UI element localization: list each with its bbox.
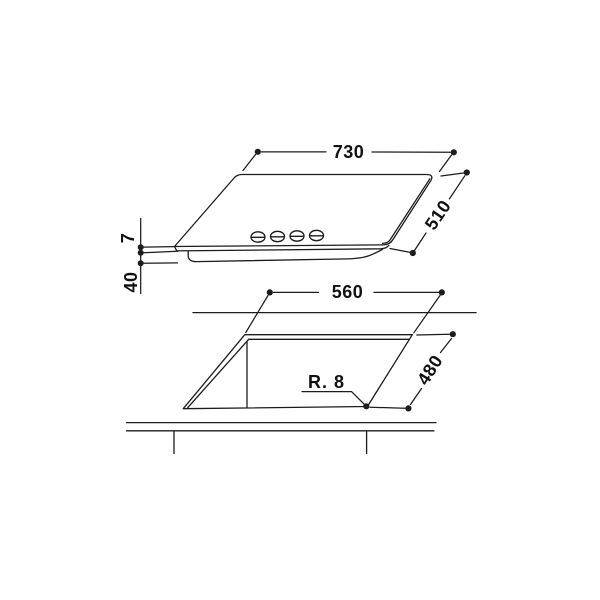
hob-perspective-view [138, 149, 470, 294]
cutout-left-edge-inner [188, 339, 249, 408]
cutout-corner-radius-label: R. 8 [305, 373, 348, 391]
dimension-480 [370, 331, 456, 411]
hob-glass-edge-inner [383, 179, 430, 244]
knob-icon [310, 230, 324, 240]
drawing-linework [0, 0, 600, 600]
cutout-width-label: 560 [329, 283, 367, 301]
hob-body-tray [188, 249, 382, 261]
technical-drawing-page: 730 510 7 40 560 480 R. 8 [0, 0, 600, 600]
knob-icon [251, 232, 265, 242]
worktop-front-edge [127, 423, 437, 454]
knob-icon [290, 231, 304, 241]
dimension-7-40 [138, 219, 178, 294]
hob-body-height-label: 40 [122, 268, 140, 295]
hob-glass-height-label: 7 [119, 230, 137, 247]
cutout-opening [183, 335, 412, 409]
hob-width-label: 730 [330, 143, 368, 161]
cutout-outline [183, 335, 412, 409]
knob-icon [271, 231, 285, 241]
knobs-group [251, 230, 324, 242]
